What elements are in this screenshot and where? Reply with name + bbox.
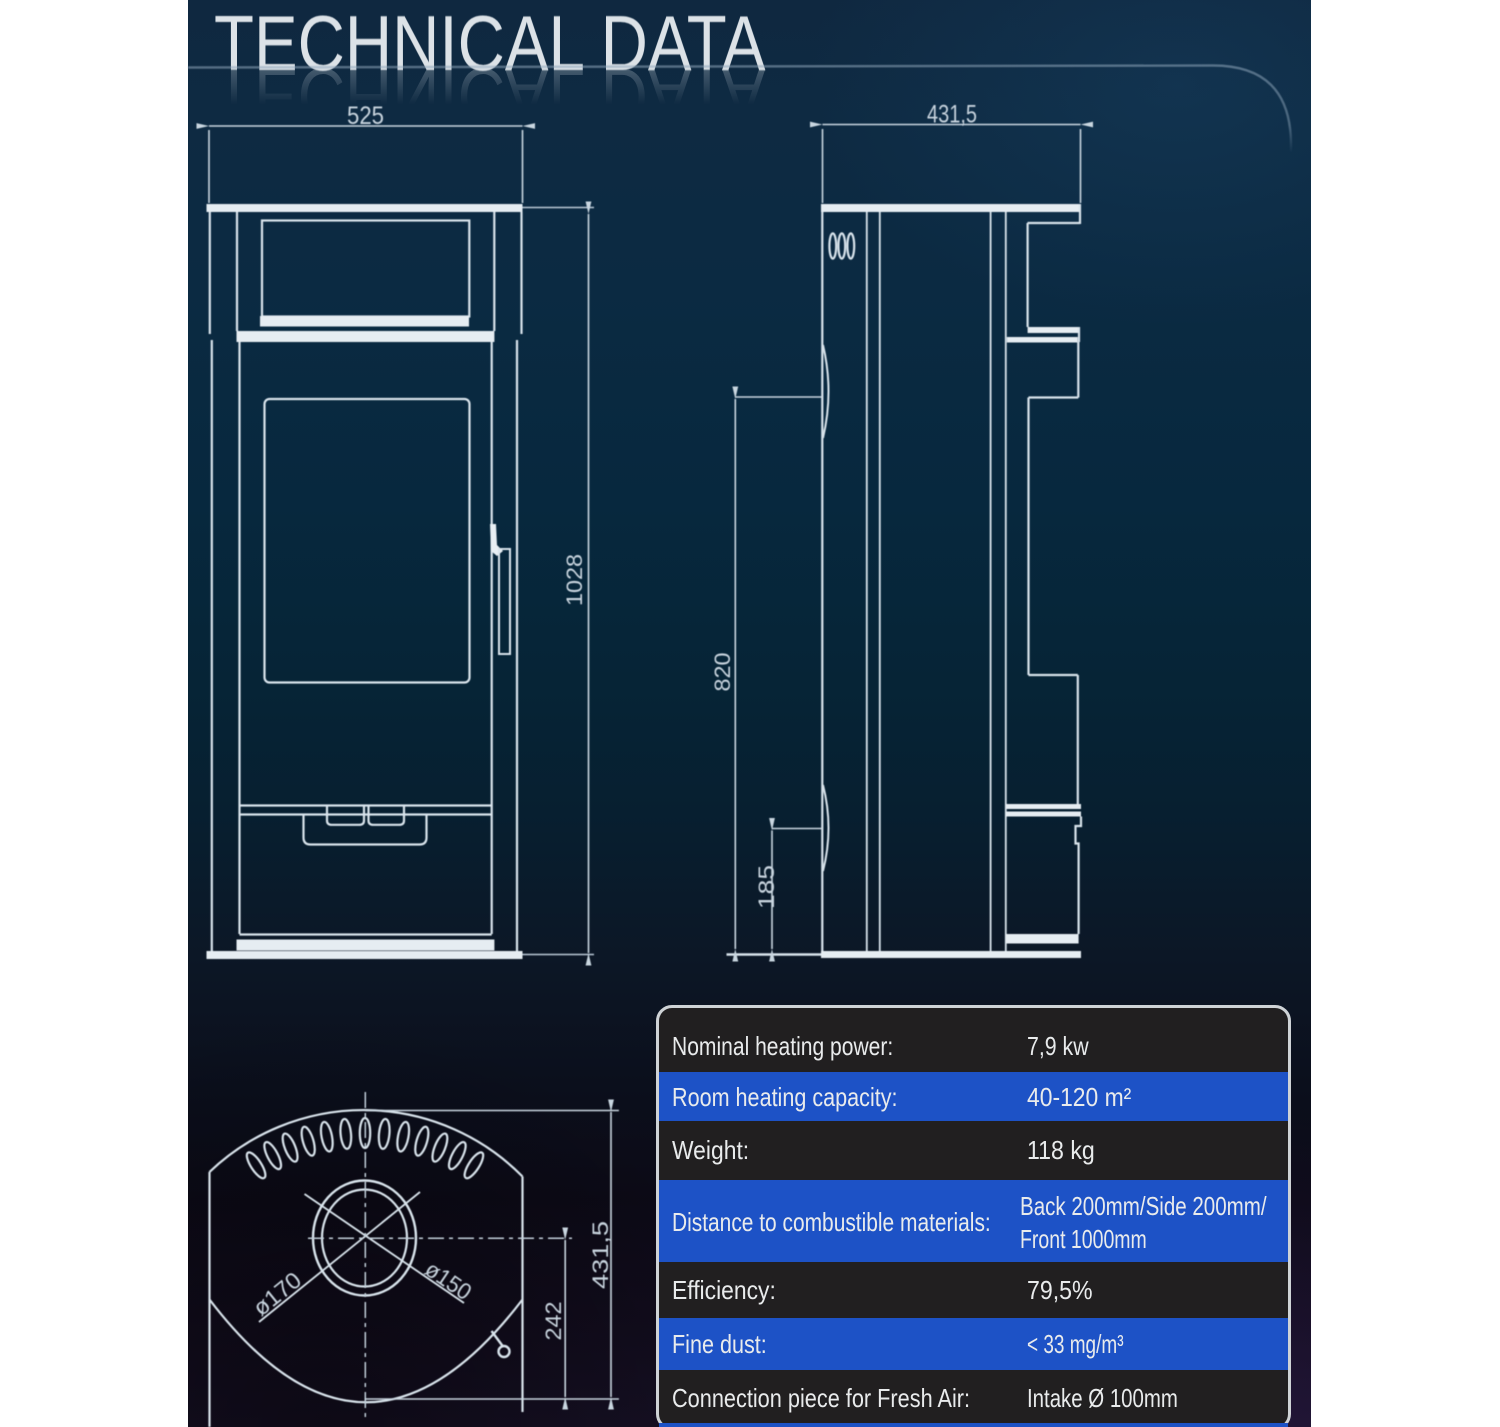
svg-text:820: 820 <box>710 653 735 692</box>
svg-text:431,5: 431,5 <box>927 101 977 129</box>
svg-text:242: 242 <box>541 1302 566 1341</box>
svg-text:1028: 1028 <box>562 554 587 606</box>
svg-text:185: 185 <box>754 865 779 909</box>
svg-text:ø150: ø150 <box>420 1256 476 1306</box>
svg-text:ø170: ø170 <box>248 1267 306 1321</box>
svg-text:525: 525 <box>347 102 384 130</box>
svg-text:431,5: 431,5 <box>588 1221 613 1289</box>
